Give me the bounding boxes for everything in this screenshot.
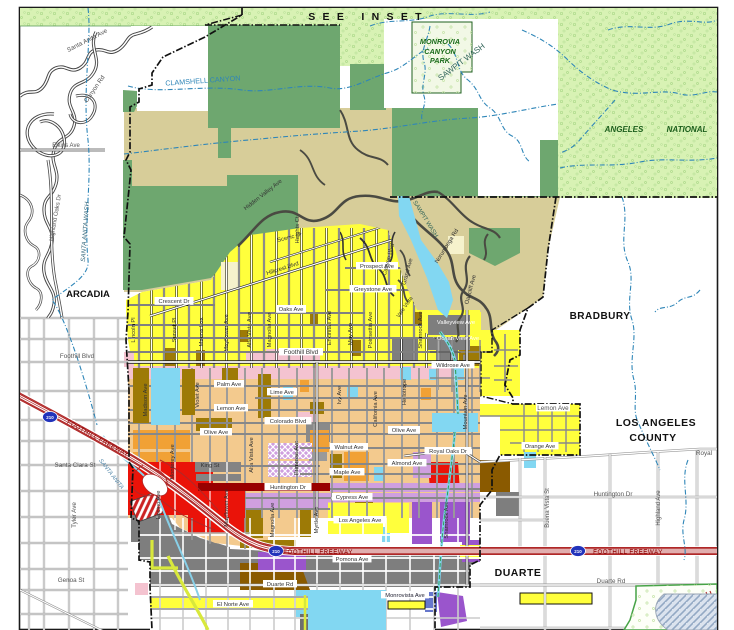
svg-text:Duarte Rd: Duarte Rd — [267, 582, 293, 588]
svg-text:NATIONAL: NATIONAL — [667, 125, 708, 134]
svg-text:Myrtle Ave: Myrtle Ave — [314, 507, 320, 534]
svg-text:King St: King St — [201, 463, 220, 469]
svg-text:Primrose Ave: Primrose Ave — [294, 441, 300, 475]
svg-text:Genoa St: Genoa St — [58, 577, 85, 584]
svg-text:Palm Ave: Palm Ave — [217, 382, 241, 388]
svg-text:Santa Clara St: Santa Clara St — [55, 462, 96, 469]
svg-text:Violet Ave: Violet Ave — [195, 382, 201, 408]
svg-text:Ocean View Ave: Ocean View Ave — [437, 336, 479, 342]
svg-text:ANGELES: ANGELES — [604, 125, 644, 134]
svg-text:Shamrock Ave: Shamrock Ave — [444, 501, 450, 538]
svg-text:ARCADIA: ARCADIA — [66, 289, 110, 300]
svg-text:Lincoln Pl: Lincoln Pl — [131, 317, 137, 342]
svg-text:Royal Oaks Dr: Royal Oaks Dr — [429, 449, 467, 455]
svg-text:Poinsettia Ave: Poinsettia Ave — [368, 312, 374, 349]
svg-text:Valleyview Ave: Valleyview Ave — [437, 320, 475, 326]
svg-text:Lemon Ave: Lemon Ave — [217, 406, 246, 412]
svg-text:Madison Ave: Madison Ave — [143, 383, 149, 416]
svg-text:Huntington Dr: Huntington Dr — [270, 485, 306, 491]
svg-text:Wildrose Ave: Wildrose Ave — [436, 363, 470, 369]
svg-text:Royal: Royal — [696, 450, 712, 457]
svg-text:210: 210 — [272, 549, 280, 554]
svg-text:Monrovista Ave: Monrovista Ave — [385, 593, 425, 599]
svg-text:Oaks Ave: Oaks Ave — [279, 307, 304, 313]
svg-text:Olive Ave: Olive Ave — [392, 428, 416, 434]
svg-text:Ivy Ave: Ivy Ave — [337, 386, 343, 405]
svg-text:S E E I N S E T: S E E I N S E T — [308, 11, 424, 23]
svg-text:Mauna Loa: Mauna Loa — [199, 317, 205, 347]
svg-text:CANYON: CANYON — [424, 47, 456, 56]
svg-text:Buena Vista St: Buena Vista St — [545, 488, 551, 528]
svg-text:Sunset Pl: Sunset Pl — [172, 318, 178, 343]
svg-text:Foothill Blvd: Foothill Blvd — [60, 353, 95, 360]
svg-text:Lime Ave: Lime Ave — [270, 390, 294, 396]
svg-text:DUARTE: DUARTE — [495, 567, 542, 579]
svg-text:Shamrock Ave: Shamrock Ave — [418, 311, 424, 348]
svg-text:COUNTY: COUNTY — [629, 432, 676, 444]
svg-text:Greystone Ave: Greystone Ave — [354, 287, 392, 293]
svg-text:MONROVIA: MONROVIA — [420, 37, 460, 46]
svg-text:Mayflower Ave: Mayflower Ave — [224, 489, 230, 527]
svg-text:Cypress Ave: Cypress Ave — [336, 495, 368, 501]
svg-text:Colorado Blvd: Colorado Blvd — [270, 419, 306, 425]
svg-text:Magnolia Ave: Magnolia Ave — [270, 503, 276, 538]
svg-text:Elkins Ave: Elkins Ave — [52, 143, 80, 149]
svg-text:Pomona Ave: Pomona Ave — [336, 557, 369, 563]
svg-text:Maple Ave: Maple Ave — [334, 470, 361, 476]
svg-text:Orange Ave: Orange Ave — [525, 444, 556, 450]
svg-text:Alta Vista Ave: Alta Vista Ave — [247, 312, 253, 348]
svg-text:Los Angeles Ave: Los Angeles Ave — [339, 518, 382, 524]
svg-text:FOOTHILL FREEWAY: FOOTHILL FREEWAY — [283, 549, 353, 556]
svg-text:Foothill Blvd: Foothill Blvd — [284, 349, 319, 356]
svg-text:Encinitas Ave: Encinitas Ave — [327, 311, 333, 346]
svg-text:Walnut Ave: Walnut Ave — [334, 445, 363, 451]
svg-text:Almond Ave: Almond Ave — [392, 461, 423, 467]
svg-text:El Norte Ave: El Norte Ave — [217, 602, 249, 608]
svg-text:Encino Ave: Encino Ave — [156, 491, 162, 520]
svg-text:210: 210 — [574, 549, 582, 554]
svg-text:Duarte Rd: Duarte Rd — [597, 578, 626, 585]
svg-text:Tyler Ave: Tyler Ave — [71, 502, 78, 528]
svg-text:May Ave: May Ave — [348, 323, 354, 345]
svg-text:Monterey Ave: Monterey Ave — [170, 444, 176, 479]
svg-text:Lemon Ave: Lemon Ave — [537, 405, 569, 412]
svg-text:Magnolia Ave: Magnolia Ave — [267, 313, 273, 348]
svg-text:FOOTHILL FREEWAY: FOOTHILL FREEWAY — [593, 549, 663, 556]
svg-text:Mayflower Ave: Mayflower Ave — [224, 314, 230, 352]
svg-text:Mountain Ave: Mountain Ave — [463, 394, 469, 429]
svg-text:California Ave: California Ave — [373, 391, 379, 427]
svg-text:PARK: PARK — [430, 56, 451, 65]
svg-text:Huntington Dr: Huntington Dr — [594, 491, 633, 498]
svg-text:Heliotrope: Heliotrope — [402, 379, 408, 405]
svg-text:Alta Vista Ave: Alta Vista Ave — [249, 437, 255, 473]
svg-text:Crescent Dr: Crescent Dr — [159, 299, 190, 305]
svg-text:Highland Ave: Highland Ave — [656, 490, 662, 526]
svg-text:LOS ANGELES: LOS ANGELES — [616, 417, 696, 429]
svg-text:210: 210 — [46, 415, 54, 420]
svg-text:Olive Ave: Olive Ave — [204, 430, 228, 436]
svg-text:BRADBURY: BRADBURY — [570, 311, 631, 322]
